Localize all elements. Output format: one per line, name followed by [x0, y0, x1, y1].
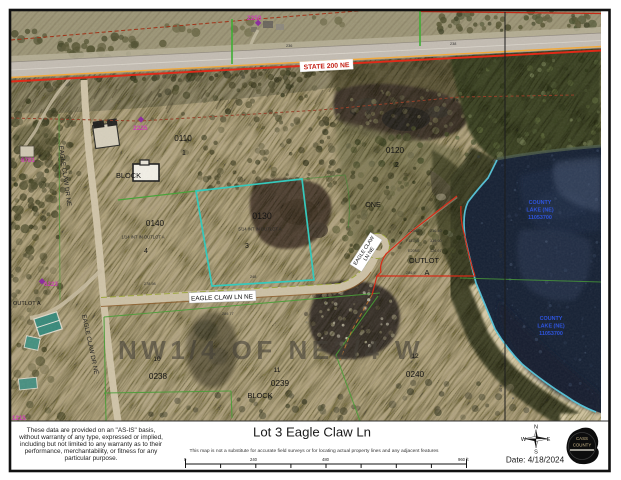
svg-text:0110: 0110 [174, 134, 192, 143]
svg-text:11053700: 11053700 [528, 215, 552, 221]
svg-text:particular purpose.: particular purpose. [65, 455, 118, 462]
svg-text:12: 12 [411, 353, 419, 360]
svg-text:40 ft: 40 ft [499, 250, 503, 258]
svg-text:Date: 4/18/2024: Date: 4/18/2024 [506, 456, 565, 465]
svg-text:COUNTY: COUNTY [540, 316, 563, 322]
svg-text:10: 10 [153, 356, 161, 363]
svg-text:289.77: 289.77 [222, 312, 234, 316]
svg-text:E20NE: E20NE [408, 249, 420, 253]
svg-text:LAKE (NE): LAKE (NE) [537, 324, 564, 330]
svg-text:A: A [425, 268, 430, 277]
svg-text:319.60: 319.60 [430, 239, 442, 243]
svg-text:BLOCK: BLOCK [247, 391, 272, 400]
svg-text:NW1/4 OF NE1/4 W: NW1/4 OF NE1/4 W [118, 335, 424, 365]
svg-text:without warranty of any type,: without warranty of any type, expressed … [18, 434, 163, 441]
svg-text:4: 4 [144, 248, 148, 255]
svg-text:These data are provided on an: These data are provided on an "AS-IS" ba… [27, 427, 156, 434]
svg-text:960 ft: 960 ft [458, 457, 469, 462]
svg-text:286.9: 286.9 [406, 271, 416, 275]
svg-text:F18745: F18745 [406, 239, 419, 243]
svg-text:1: 1 [182, 150, 186, 157]
svg-text:0239: 0239 [271, 379, 290, 388]
svg-text:11053700: 11053700 [539, 331, 563, 337]
svg-text:216.40: 216.40 [430, 229, 442, 233]
svg-text:11: 11 [274, 367, 281, 374]
svg-text:2225: 2225 [133, 125, 148, 132]
svg-text:0120: 0120 [386, 146, 405, 155]
svg-text:CASS: CASS [576, 436, 588, 441]
svg-text:Lot 3 Eagle Claw Ln: Lot 3 Eagle Claw Ln [253, 425, 371, 440]
svg-text:E: E [547, 437, 551, 443]
svg-text:1/14 INT IN OUTLOT A: 1/14 INT IN OUTLOT A [121, 235, 164, 240]
svg-text:126.97: 126.97 [430, 249, 442, 253]
svg-text:0130: 0130 [252, 211, 272, 221]
svg-text:COUNTY: COUNTY [573, 443, 592, 448]
svg-text:performance, merchantability,: performance, merchantability, or fitness… [25, 448, 159, 455]
svg-text:3: 3 [245, 243, 249, 250]
svg-text:5/14 INT IN OUTLOT A: 5/14 INT IN OUTLOT A [238, 227, 281, 232]
svg-text:2: 2 [395, 162, 399, 169]
svg-text:W: W [521, 437, 527, 443]
svg-text:238: 238 [450, 42, 456, 46]
svg-text:248: 248 [250, 275, 256, 279]
svg-text:including but not limited to a: including but not limited to any warrant… [20, 441, 163, 448]
svg-text:ONE: ONE [365, 200, 381, 209]
svg-text:236: 236 [286, 44, 292, 48]
svg-text:OUTLOT A: OUTLOT A [13, 301, 41, 307]
svg-text:480: 480 [322, 457, 330, 462]
svg-text:0140: 0140 [146, 219, 165, 228]
svg-text:C2042: C2042 [408, 229, 419, 233]
svg-text:40 ft: 40 ft [499, 384, 503, 392]
svg-text:0240: 0240 [406, 370, 425, 379]
svg-text:6781: 6781 [21, 157, 35, 164]
svg-text:This map is not a substitute f: This map is not a substitute for accurat… [189, 448, 439, 454]
svg-text:BLOCK: BLOCK [116, 171, 141, 180]
svg-text:LAKE (NE): LAKE (NE) [526, 208, 553, 214]
svg-text:6223: 6223 [44, 281, 58, 288]
svg-text:240: 240 [250, 457, 258, 462]
svg-text:0238: 0238 [149, 372, 168, 381]
svg-text:COUNTY: COUNTY [529, 200, 552, 206]
svg-text:2250: 2250 [247, 15, 262, 22]
svg-text:OUTLOT: OUTLOT [409, 256, 439, 265]
svg-text:278.98: 278.98 [144, 282, 156, 286]
